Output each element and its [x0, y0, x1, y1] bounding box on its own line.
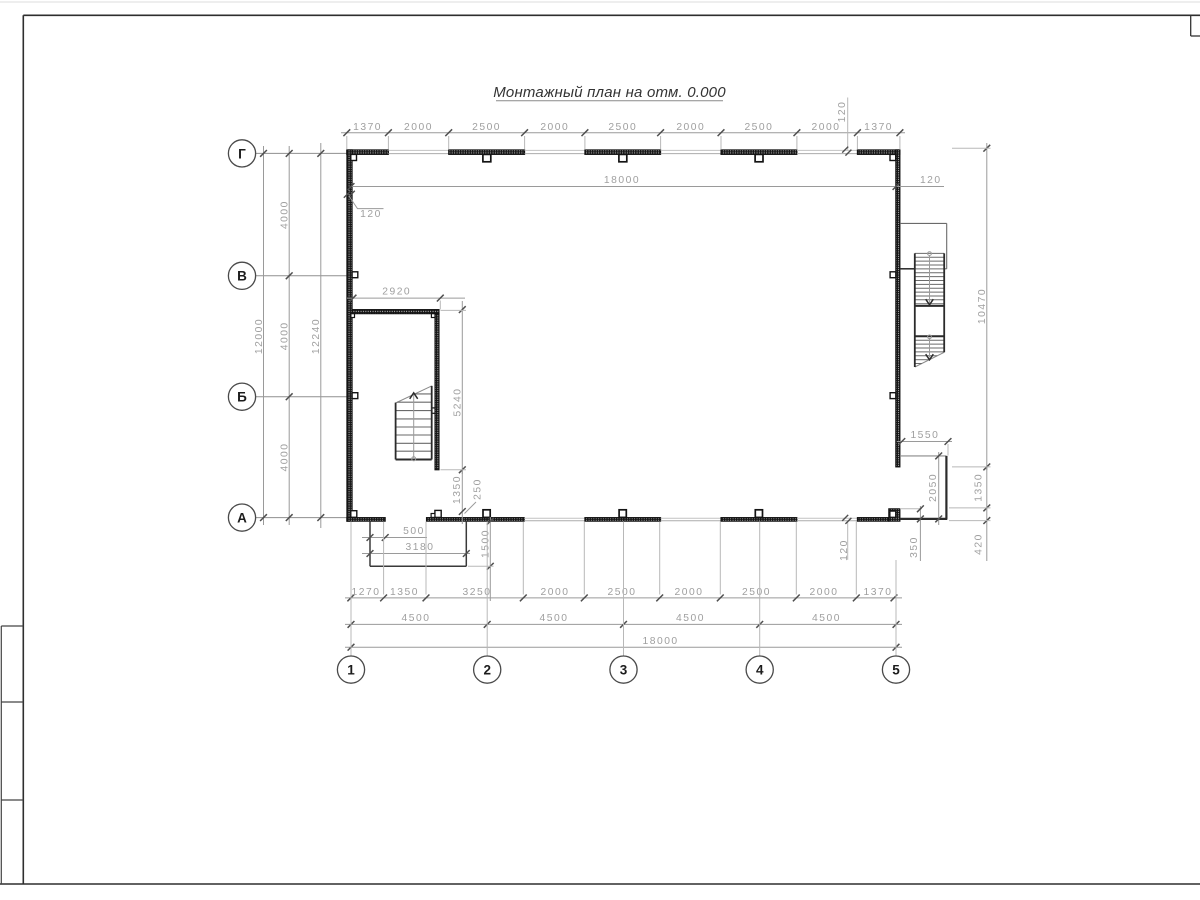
svg-text:2920: 2920 [382, 286, 411, 297]
svg-text:1550: 1550 [910, 430, 939, 441]
svg-text:120: 120 [920, 175, 942, 186]
svg-text:В: В [237, 269, 247, 284]
svg-text:120: 120 [360, 209, 382, 220]
svg-text:Б: Б [237, 390, 247, 405]
svg-text:1270: 1270 [352, 587, 381, 598]
svg-text:12000: 12000 [254, 318, 265, 354]
svg-text:18000: 18000 [643, 636, 679, 647]
svg-text:2000: 2000 [676, 122, 705, 133]
svg-text:1350: 1350 [973, 473, 984, 502]
svg-text:4500: 4500 [402, 613, 431, 624]
svg-text:250: 250 [473, 478, 484, 500]
svg-text:1350: 1350 [452, 475, 463, 504]
svg-text:2500: 2500 [608, 122, 637, 133]
svg-text:350: 350 [909, 536, 920, 558]
svg-text:12240: 12240 [311, 318, 322, 354]
svg-text:1: 1 [347, 663, 355, 678]
svg-text:1500: 1500 [481, 529, 492, 558]
svg-text:2000: 2000 [812, 122, 841, 133]
svg-text:4000: 4000 [279, 321, 290, 350]
svg-text:2500: 2500 [608, 587, 637, 598]
svg-text:2: 2 [483, 663, 491, 678]
svg-text:18000: 18000 [604, 175, 640, 186]
svg-text:А: А [237, 511, 247, 526]
svg-text:2000: 2000 [540, 122, 569, 133]
svg-text:2000: 2000 [675, 587, 704, 598]
svg-text:2500: 2500 [744, 122, 773, 133]
svg-text:500: 500 [403, 526, 425, 537]
svg-text:10470: 10470 [977, 288, 988, 324]
svg-text:120: 120 [837, 101, 848, 123]
svg-text:2050: 2050 [928, 473, 939, 502]
svg-text:4500: 4500 [812, 613, 841, 624]
svg-text:3: 3 [620, 663, 628, 678]
svg-text:1350: 1350 [390, 587, 419, 598]
svg-text:Г: Г [238, 146, 246, 161]
svg-text:420: 420 [973, 533, 984, 555]
svg-text:1370: 1370 [864, 122, 893, 133]
svg-text:Монтажный план на отм. 0.000: Монтажный план на отм. 0.000 [493, 84, 726, 101]
svg-text:1370: 1370 [864, 587, 893, 598]
svg-text:2000: 2000 [541, 587, 570, 598]
svg-text:5240: 5240 [453, 388, 464, 417]
svg-text:5: 5 [892, 663, 900, 678]
svg-text:2500: 2500 [472, 122, 501, 133]
svg-text:1370: 1370 [353, 122, 382, 133]
svg-text:4500: 4500 [676, 613, 705, 624]
svg-text:4: 4 [756, 663, 764, 678]
svg-text:120: 120 [839, 539, 850, 561]
svg-text:2500: 2500 [742, 587, 771, 598]
svg-text:4000: 4000 [279, 443, 290, 472]
svg-text:2000: 2000 [810, 587, 839, 598]
svg-text:3180: 3180 [406, 542, 435, 553]
svg-text:4500: 4500 [540, 613, 569, 624]
svg-text:2000: 2000 [404, 122, 433, 133]
svg-text:4000: 4000 [279, 200, 290, 229]
